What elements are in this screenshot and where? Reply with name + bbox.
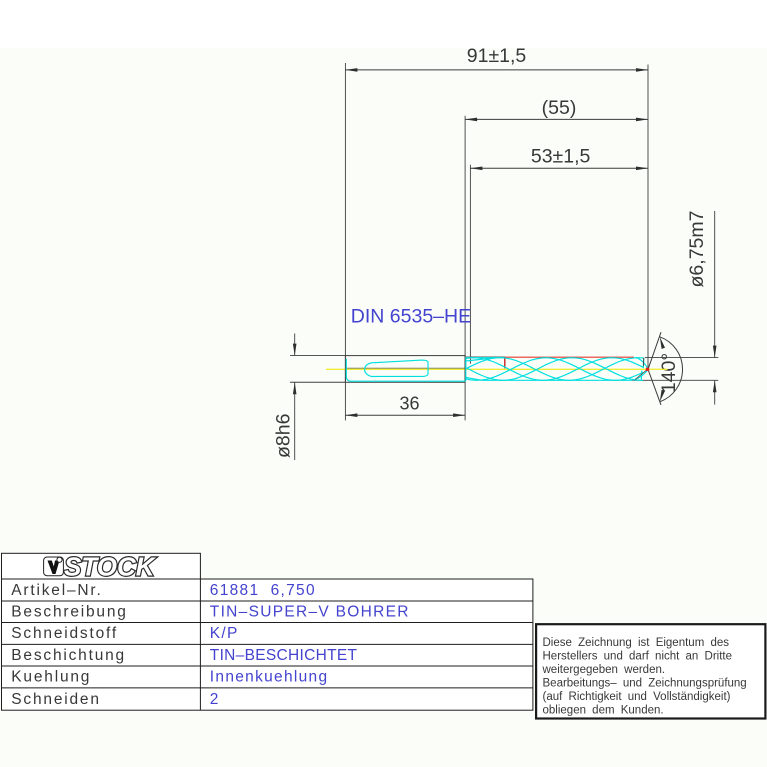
svg-text:Beschichtung: Beschichtung	[11, 647, 126, 664]
svg-text:TIN–BESCHICHTET: TIN–BESCHICHTET	[210, 647, 358, 664]
svg-text:Beschreibung: Beschreibung	[11, 604, 127, 621]
svg-text:53±1,5: 53±1,5	[531, 146, 591, 168]
svg-text:DIN 6535–HE: DIN 6535–HE	[351, 305, 471, 327]
svg-text:2: 2	[210, 691, 220, 708]
svg-text:61881 6,750: 61881 6,750	[210, 582, 316, 599]
svg-text:weitergegeben werden.: weitergegeben werden.	[542, 664, 666, 676]
svg-text:36: 36	[399, 393, 419, 413]
svg-text:Schneiden: Schneiden	[11, 691, 100, 708]
svg-text:TIN–SUPER–V BOHRER: TIN–SUPER–V BOHRER	[210, 604, 410, 621]
svg-text:Herstellers und darf nicht an: Herstellers und darf nicht an Dritte	[543, 651, 733, 663]
svg-text:ø6,75m7: ø6,75m7	[686, 211, 708, 288]
svg-text:Artikel–Nr.: Artikel–Nr.	[11, 582, 102, 599]
svg-text:(55): (55)	[542, 97, 577, 119]
svg-text:STOCK: STOCK	[64, 552, 157, 582]
svg-text:Diese Zeichnung ist Eigentum d: Diese Zeichnung ist Eigentum des	[543, 637, 730, 649]
svg-text:140°: 140°	[658, 353, 680, 393]
svg-text:Bearbeitungs– und Zeichnungspr: Bearbeitungs– und Zeichnungsprüfung	[543, 678, 747, 690]
svg-text:Innenkuehlung: Innenkuehlung	[210, 669, 329, 686]
svg-text:(auf Richtigkeit und Vollständ: (auf Richtigkeit und Vollständigkeit)	[543, 691, 731, 703]
svg-text:K/P: K/P	[210, 625, 239, 642]
svg-text:ø8h6: ø8h6	[273, 414, 295, 458]
svg-text:91±1,5: 91±1,5	[467, 45, 527, 67]
svg-text:Kuehlung: Kuehlung	[11, 669, 91, 686]
svg-text:obliegen dem Kunden.: obliegen dem Kunden.	[543, 705, 664, 717]
svg-text:Schneidstoff: Schneidstoff	[11, 625, 118, 642]
